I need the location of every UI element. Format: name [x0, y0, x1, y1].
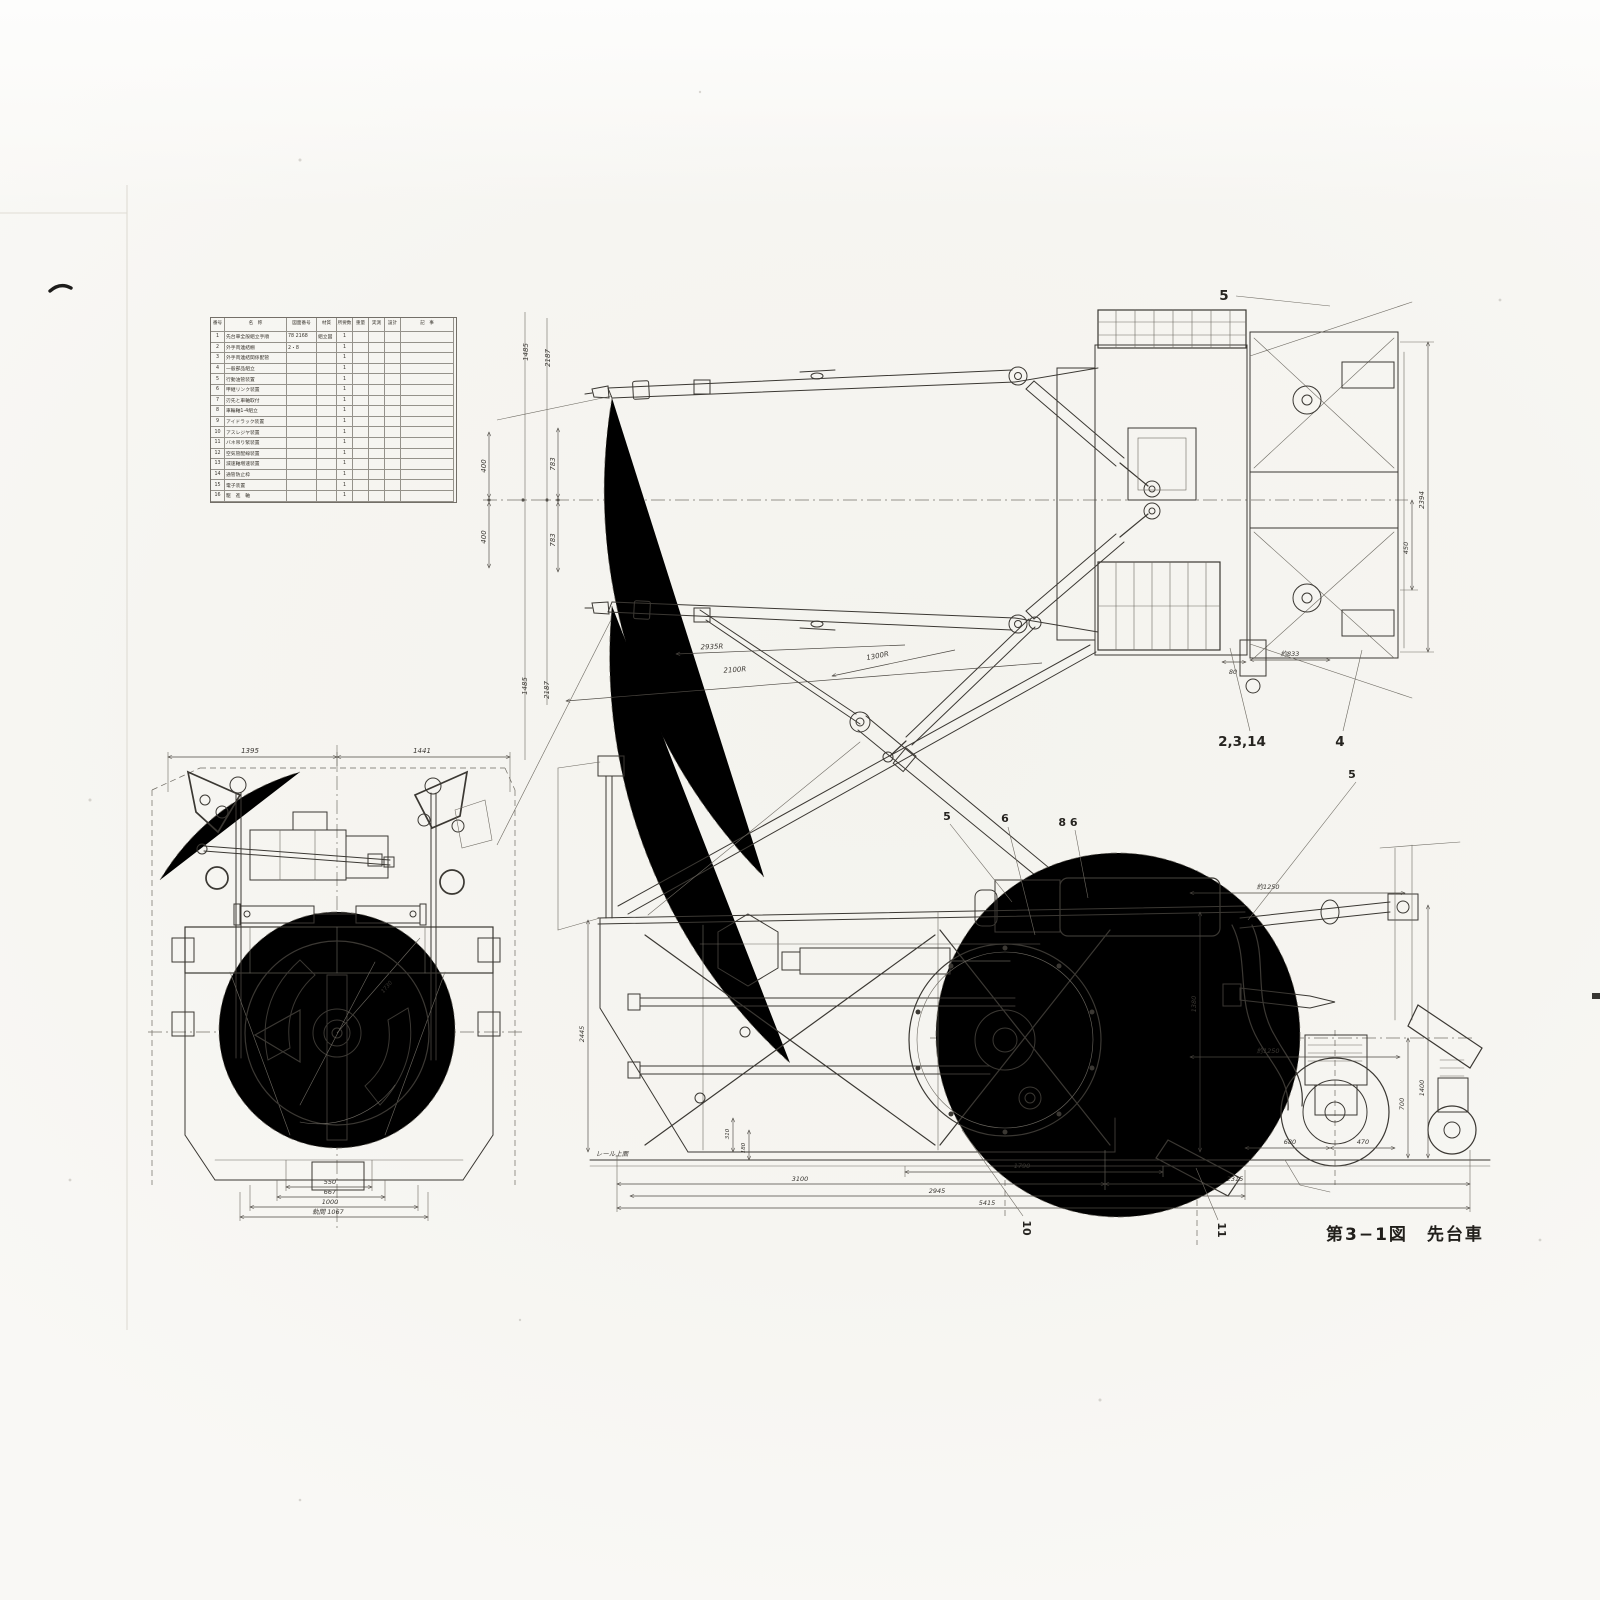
table-cell: [353, 427, 369, 438]
table-cell: [353, 343, 369, 354]
table-cell: [369, 332, 385, 343]
table-cell: [317, 438, 337, 449]
table-row: 6甲継リンク装置1: [211, 385, 456, 396]
dim-label: 667: [324, 1188, 337, 1196]
table-cell: 1: [337, 417, 353, 428]
dim-label: 2315: [1227, 1175, 1244, 1183]
table-cell: 通管防止枠: [225, 470, 287, 481]
dim-label: 2394: [1418, 491, 1426, 509]
table-cell: [385, 459, 401, 470]
table-cell: 5: [211, 374, 225, 385]
table-row: 1先台車全般組立手順78 2168組立図1: [211, 332, 456, 343]
callout-8-6: 8 6: [1058, 816, 1077, 829]
callout-5-right: 5: [1348, 768, 1356, 781]
table-cell: 4: [211, 364, 225, 375]
table-cell: 1: [337, 332, 353, 343]
table-row: 15電子装置1: [211, 480, 456, 491]
table-cell: 12: [211, 449, 225, 460]
parts-table-body: 1先台車全般組立手順78 2168組立図12外手両連結棚2・813外手両連結関係…: [211, 332, 456, 502]
table-cell: 電子装置: [225, 480, 287, 491]
table-cell: 1: [337, 406, 353, 417]
table-cell: [369, 470, 385, 481]
table-cell: [353, 385, 369, 396]
table-cell: [385, 438, 401, 449]
table-cell: 外手両連結棚: [225, 343, 287, 354]
dim-label: 約833: [1281, 650, 1300, 658]
table-cell: [369, 385, 385, 396]
table-cell: [287, 396, 317, 407]
radius-label: 2100R: [723, 665, 746, 675]
table-cell: [369, 364, 385, 375]
table-cell: 1: [337, 438, 353, 449]
table-cell: 1: [337, 385, 353, 396]
table-cell: 1: [337, 459, 353, 470]
dim-label: 1400: [1418, 1080, 1426, 1097]
table-cell: [385, 406, 401, 417]
table-cell: [369, 396, 385, 407]
table-cell: [369, 449, 385, 460]
table-cell: 16: [211, 491, 225, 502]
table-cell: [353, 449, 369, 460]
table-cell: [287, 491, 317, 502]
paper-specks: [69, 91, 1542, 1501]
dim-label: 470: [1357, 1138, 1369, 1146]
figure-caption: 第3−1図 先台車: [1326, 1220, 1556, 1245]
table-cell: [287, 438, 317, 449]
table-cell: [369, 438, 385, 449]
dim-label: 1380: [1190, 996, 1198, 1013]
dim-label: 3100: [792, 1175, 809, 1183]
table-row: 13減速軸増速装置1: [211, 459, 456, 470]
column-header: 設計: [385, 318, 401, 332]
dim-label: 2187: [543, 681, 551, 699]
table-cell: [401, 385, 454, 396]
table-cell: [385, 480, 401, 491]
table-cell: 15: [211, 480, 225, 491]
table-row: 12空気管配線装置1: [211, 449, 456, 460]
table-cell: [353, 332, 369, 343]
callout-11: 11: [1215, 1222, 1228, 1237]
table-cell: [317, 406, 337, 417]
table-cell: [401, 406, 454, 417]
table-cell: [317, 470, 337, 481]
table-cell: [353, 491, 369, 502]
table-row: 14通管防止枠1: [211, 470, 456, 481]
dim-label: 1485: [521, 677, 529, 695]
dim-label: 2187: [544, 349, 552, 367]
table-cell: 2・8: [287, 343, 317, 354]
table-cell: [287, 480, 317, 491]
table-cell: 1: [337, 364, 353, 375]
table-cell: アスレジヤ装置: [225, 427, 287, 438]
table-cell: [317, 417, 337, 428]
table-cell: [353, 417, 369, 428]
table-row: 4一般部品組立1: [211, 364, 456, 375]
table-cell: [317, 374, 337, 385]
table-cell: [353, 374, 369, 385]
table-cell: [369, 427, 385, 438]
table-cell: [385, 396, 401, 407]
callout-5: 5: [1219, 288, 1228, 304]
table-cell: [401, 470, 454, 481]
callout-10: 10: [1020, 1220, 1033, 1236]
table-cell: 1: [337, 427, 353, 438]
blueprint-sheet: 400 400 783 783 1485 2187 1485 2187 2935…: [0, 0, 1600, 1600]
table-cell: [317, 353, 337, 364]
table-cell: [317, 427, 337, 438]
table-cell: [401, 343, 454, 354]
table-cell: [401, 364, 454, 375]
table-cell: [353, 406, 369, 417]
column-header: 材質: [317, 318, 337, 332]
table-row: 11バネ吊り緊装置1: [211, 438, 456, 449]
table-cell: [353, 364, 369, 375]
table-cell: [287, 449, 317, 460]
table-cell: [369, 374, 385, 385]
plan-callouts: 5 2,3,14 4: [1218, 288, 1362, 750]
table-cell: [317, 491, 337, 502]
table-cell: [385, 343, 401, 354]
table-cell: 外手両連結関係配管: [225, 353, 287, 364]
dim-label: 783: [549, 457, 557, 470]
table-cell: [369, 480, 385, 491]
table-cell: [317, 459, 337, 470]
dim-label: 310: [725, 1128, 731, 1139]
table-cell: [385, 427, 401, 438]
dim-label: 400: [480, 459, 488, 473]
table-cell: 1: [337, 449, 353, 460]
table-cell: [353, 353, 369, 364]
table-cell: 1: [337, 343, 353, 354]
dim-label: 1790: [1014, 1162, 1031, 1170]
table-cell: [401, 396, 454, 407]
table-cell: 9: [211, 417, 225, 428]
column-header: 図面番号: [287, 318, 317, 332]
front-view: 1395 1441: [148, 745, 522, 1232]
table-cell: 14: [211, 470, 225, 481]
radius-label: 2935R: [700, 643, 723, 652]
table-cell: [317, 449, 337, 460]
dim-label: 1485: [522, 343, 530, 361]
table-cell: 1: [337, 480, 353, 491]
dim-label: 約1250: [1256, 1047, 1279, 1055]
table-cell: [317, 343, 337, 354]
table-row: 5行動油管装置1: [211, 374, 456, 385]
table-cell: 7: [211, 396, 225, 407]
table-cell: [385, 353, 401, 364]
table-cell: [353, 396, 369, 407]
table-cell: [287, 374, 317, 385]
table-cell: [401, 459, 454, 470]
table-cell: 6: [211, 385, 225, 396]
table-cell: 13: [211, 459, 225, 470]
table-cell: [287, 353, 317, 364]
table-cell: 8: [211, 406, 225, 417]
table-cell: [287, 470, 317, 481]
table-cell: 1: [211, 332, 225, 343]
table-cell: [369, 406, 385, 417]
table-cell: [401, 480, 454, 491]
table-cell: 駆 進 軸: [225, 491, 287, 502]
table-row: 9アイドラック装置1: [211, 417, 456, 428]
table-cell: 減速軸増速装置: [225, 459, 287, 470]
dim-label: 700: [1398, 1098, 1406, 1110]
table-cell: [369, 417, 385, 428]
table-cell: [369, 491, 385, 502]
column-header: 記 事: [401, 318, 454, 332]
table-cell: [317, 480, 337, 491]
table-cell: [369, 459, 385, 470]
table-cell: 1: [337, 470, 353, 481]
table-cell: バネ吊り緊装置: [225, 438, 287, 449]
table-cell: [317, 364, 337, 375]
table-cell: [287, 406, 317, 417]
dim-label: 180: [741, 1142, 747, 1153]
table-cell: 3: [211, 353, 225, 364]
dim-label: 1441: [413, 747, 431, 755]
table-cell: [401, 332, 454, 343]
table-cell: 1: [337, 396, 353, 407]
table-cell: 甲継リンク装置: [225, 385, 287, 396]
table-cell: [401, 417, 454, 428]
table-cell: 車輪軸1-4組立: [225, 406, 287, 417]
table-cell: [287, 417, 317, 428]
table-cell: 1: [337, 491, 353, 502]
callout-6: 6: [1001, 812, 1009, 825]
callout-4: 4: [1335, 734, 1344, 750]
table-row: 10アスレジヤ装置1: [211, 427, 456, 438]
table-cell: [287, 364, 317, 375]
table-row: 2外手両連結棚2・81: [211, 343, 456, 354]
table-cell: [401, 491, 454, 502]
dim-label: 783: [549, 533, 557, 546]
dim-label: 5415: [979, 1199, 996, 1207]
table-cell: [385, 364, 401, 375]
column-header: 重量: [353, 318, 369, 332]
table-cell: [385, 332, 401, 343]
table-cell: アイドラック装置: [225, 417, 287, 428]
column-header: 実測: [369, 318, 385, 332]
table-cell: [287, 385, 317, 396]
table-cell: [401, 353, 454, 364]
dim-label: 550: [324, 1178, 336, 1186]
table-cell: 組立図: [317, 332, 337, 343]
table-cell: [401, 374, 454, 385]
dim-label: 2945: [929, 1187, 946, 1195]
table-cell: [401, 427, 454, 438]
table-cell: [385, 385, 401, 396]
table-cell: [401, 449, 454, 460]
plan-view: 400 400 783 783 1485 2187 1485 2187 2935…: [480, 288, 1434, 1063]
column-header: 所要数: [337, 318, 353, 332]
table-row: 7刃先と車軸取付1: [211, 396, 456, 407]
upper-boom: [585, 367, 1160, 497]
table-cell: 先台車全般組立手順: [225, 332, 287, 343]
rail-top-label: レール上面: [596, 1150, 630, 1158]
table-cell: 1: [337, 353, 353, 364]
table-cell: [385, 374, 401, 385]
dim-label: 2445: [578, 1026, 586, 1043]
radius-label: 1300R: [866, 650, 890, 662]
dim-label: 450: [1402, 542, 1410, 554]
parts-list-table: 番号 名 称 図面番号 材質 所要数 重量 実測 設計 記 事 1先台車全般組立…: [210, 317, 457, 503]
table-cell: [385, 491, 401, 502]
table-cell: 11: [211, 438, 225, 449]
table-cell: 10: [211, 427, 225, 438]
drawing-canvas: 400 400 783 783 1485 2187 1485 2187 2935…: [0, 0, 1600, 1600]
table-cell: 刃先と車軸取付: [225, 396, 287, 407]
table-row: 3外手両連結関係配管1: [211, 353, 456, 364]
callout-5: 5: [943, 810, 951, 823]
table-cell: 空気管配線装置: [225, 449, 287, 460]
table-cell: [369, 343, 385, 354]
table-cell: [385, 449, 401, 460]
table-cell: [287, 459, 317, 470]
table-cell: [353, 470, 369, 481]
table-cell: [317, 385, 337, 396]
table-cell: 行動油管装置: [225, 374, 287, 385]
table-cell: [401, 438, 454, 449]
column-header: 番号: [211, 318, 225, 332]
table-cell: [369, 353, 385, 364]
table-cell: [287, 427, 317, 438]
table-cell: 一般部品組立: [225, 364, 287, 375]
parts-table-header: 番号 名 称 図面番号 材質 所要数 重量 実測 設計 記 事: [211, 318, 456, 332]
table-row: 16駆 進 軸1: [211, 491, 456, 502]
gauge-label: 軌間 1067: [312, 1208, 344, 1216]
table-cell: [317, 396, 337, 407]
table-cell: [353, 480, 369, 491]
table-cell: 78 2168: [287, 332, 317, 343]
table-row: 8車輪軸1-4組立1: [211, 406, 456, 417]
dim-label: 1395: [241, 747, 259, 755]
dim-label: 400: [480, 530, 488, 544]
table-cell: [353, 459, 369, 470]
callout-2-3-14: 2,3,14: [1218, 734, 1266, 750]
table-cell: 2: [211, 343, 225, 354]
table-cell: [385, 470, 401, 481]
table-cell: 1: [337, 374, 353, 385]
dim-label: 680: [1284, 1138, 1296, 1146]
dim-label: 1000: [322, 1198, 339, 1206]
table-cell: [353, 438, 369, 449]
column-header: 名 称: [225, 318, 287, 332]
table-cell: [385, 417, 401, 428]
